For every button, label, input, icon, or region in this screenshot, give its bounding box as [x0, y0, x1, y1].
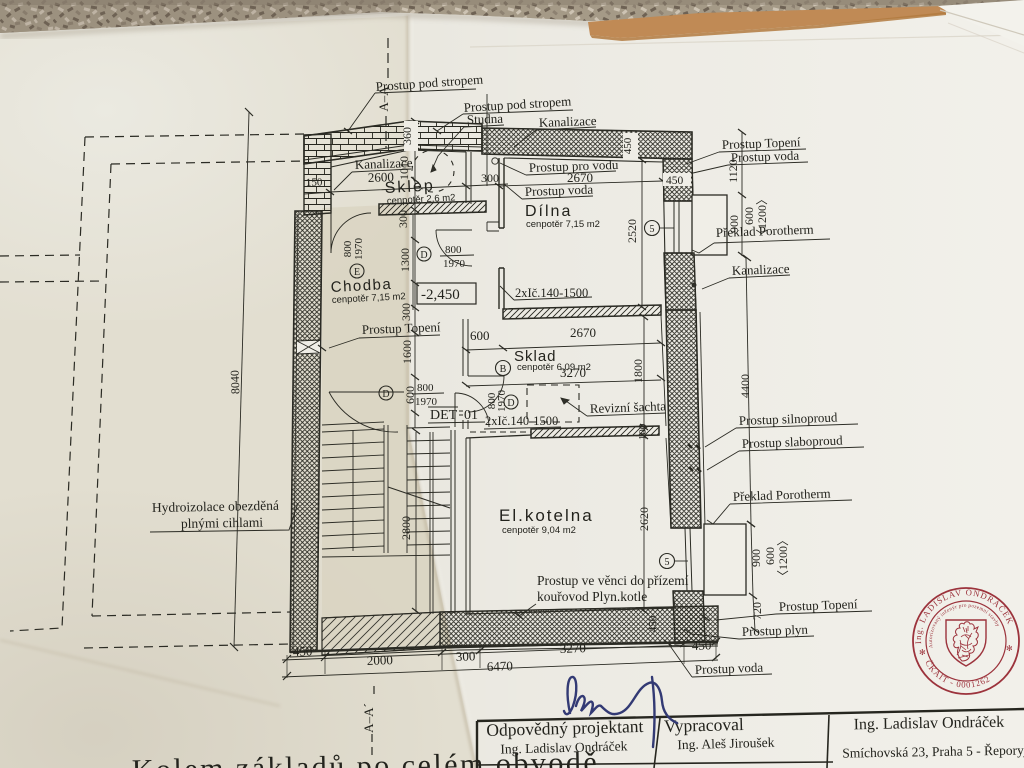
svg-text:1300: 1300 — [398, 248, 412, 272]
svg-text:1800: 1800 — [631, 359, 645, 383]
svg-text:B: B — [500, 364, 507, 375]
svg-text:1970: 1970 — [443, 258, 466, 270]
svg-text:〈1200〉: 〈1200〉 — [755, 193, 769, 241]
svg-text:300: 300 — [396, 210, 410, 228]
svg-text:4400: 4400 — [738, 374, 752, 398]
svg-text:2520: 2520 — [625, 219, 639, 243]
svg-text:1970: 1970 — [353, 238, 365, 261]
svg-text:720: 720 — [750, 602, 764, 620]
svg-text:2620: 2620 — [637, 507, 651, 531]
svg-text:900: 900 — [727, 215, 741, 233]
svg-text:E: E — [354, 267, 360, 278]
svg-text:✻: ✻ — [1006, 644, 1013, 653]
svg-text:Dílna: Dílna — [525, 203, 572, 220]
svg-text:2670: 2670 — [570, 325, 596, 340]
svg-text:450: 450 — [622, 137, 634, 154]
svg-text:800: 800 — [445, 244, 462, 256]
svg-text:✻: ✻ — [919, 648, 926, 657]
svg-text:Ing. Aleš Jiroušek: Ing. Aleš Jiroušek — [677, 735, 775, 753]
svg-text:Prostup plyn: Prostup plyn — [742, 622, 809, 639]
svg-text:Hydroizolace obezděná: Hydroizolace obezděná — [152, 498, 279, 515]
svg-text:Revizní šachta: Revizní šachta — [590, 398, 667, 416]
svg-text:300: 300 — [399, 303, 413, 321]
svg-text:2xIč.140-1500: 2xIč.140-1500 — [515, 286, 588, 300]
svg-text:A–A´: A–A´ — [361, 703, 376, 733]
svg-text:cenpotěr 7,15 m2: cenpotěr 7,15 m2 — [526, 219, 600, 230]
svg-text:450: 450 — [692, 637, 712, 653]
svg-text:3270: 3270 — [560, 365, 586, 380]
svg-text:5: 5 — [650, 224, 655, 235]
svg-text:5: 5 — [665, 557, 670, 568]
svg-text:plnými cihlami: plnými cihlami — [181, 515, 264, 531]
svg-text:1600: 1600 — [400, 340, 414, 364]
svg-text:〈1200〉: 〈1200〉 — [776, 534, 790, 582]
svg-text:A–A: A–A — [376, 86, 391, 112]
svg-text:Ing. Ladislav Ondráček: Ing. Ladislav Ondráček — [853, 714, 1004, 734]
svg-text:450: 450 — [666, 175, 684, 187]
svg-text:150: 150 — [306, 176, 323, 189]
svg-text:cenpotěr 9,04 m2: cenpotěr 9,04 m2 — [502, 525, 576, 536]
svg-text:Kanalizace: Kanalizace — [539, 113, 597, 130]
svg-text:800: 800 — [417, 382, 434, 394]
svg-text:2800: 2800 — [399, 516, 413, 540]
svg-text:DET: DET — [430, 408, 458, 423]
svg-text:Prostup ve věnci do přízemí: Prostup ve věnci do přízemí — [537, 573, 689, 588]
svg-text:100: 100 — [637, 423, 649, 440]
svg-text:1010: 1010 — [397, 156, 411, 180]
svg-text:Prostup voda: Prostup voda — [695, 660, 764, 677]
svg-text:kouřovod Plyn.kotle: kouřovod Plyn.kotle — [537, 589, 647, 604]
svg-text:300: 300 — [481, 171, 499, 185]
svg-text:D: D — [382, 389, 389, 400]
svg-text:300: 300 — [456, 648, 476, 664]
svg-text:2000: 2000 — [367, 652, 394, 668]
svg-text:1970: 1970 — [496, 390, 508, 413]
svg-text:Prostup voda: Prostup voda — [525, 182, 594, 199]
svg-text:3270: 3270 — [560, 640, 587, 656]
svg-text:1970: 1970 — [415, 396, 438, 408]
svg-text:360: 360 — [400, 127, 414, 145]
svg-text:2xIč.140-1500: 2xIč.140-1500 — [485, 414, 558, 428]
svg-text:Prostup voda: Prostup voda — [731, 148, 800, 165]
svg-text:Kanalizace: Kanalizace — [732, 261, 790, 278]
svg-text:D: D — [507, 398, 514, 409]
svg-text:600: 600 — [470, 328, 490, 343]
svg-text:900: 900 — [749, 549, 763, 567]
svg-text:D: D — [420, 250, 427, 261]
svg-text:Vypracoval: Vypracoval — [664, 714, 744, 736]
svg-text:Smíchovská 23, Praha 5 - Řepor: Smíchovská 23, Praha 5 - Řeporyje — [842, 742, 1024, 760]
svg-text:600: 600 — [742, 207, 756, 225]
svg-text:8040: 8040 — [228, 370, 243, 394]
svg-text:-2,450: -2,450 — [421, 287, 460, 303]
svg-text:1120: 1120 — [726, 159, 740, 183]
svg-text:Prostup Topení: Prostup Topení — [779, 596, 859, 614]
svg-text:600: 600 — [763, 547, 777, 565]
svg-text:Studna: Studna — [467, 111, 504, 127]
svg-text:Odpovědný projektant: Odpovědný projektant — [486, 716, 644, 740]
svg-text:6470: 6470 — [487, 658, 514, 674]
svg-text:01: 01 — [464, 408, 478, 423]
svg-text:El.kotelna: El.kotelna — [499, 506, 594, 525]
svg-text:450: 450 — [293, 643, 313, 659]
svg-text:450: 450 — [647, 615, 659, 632]
